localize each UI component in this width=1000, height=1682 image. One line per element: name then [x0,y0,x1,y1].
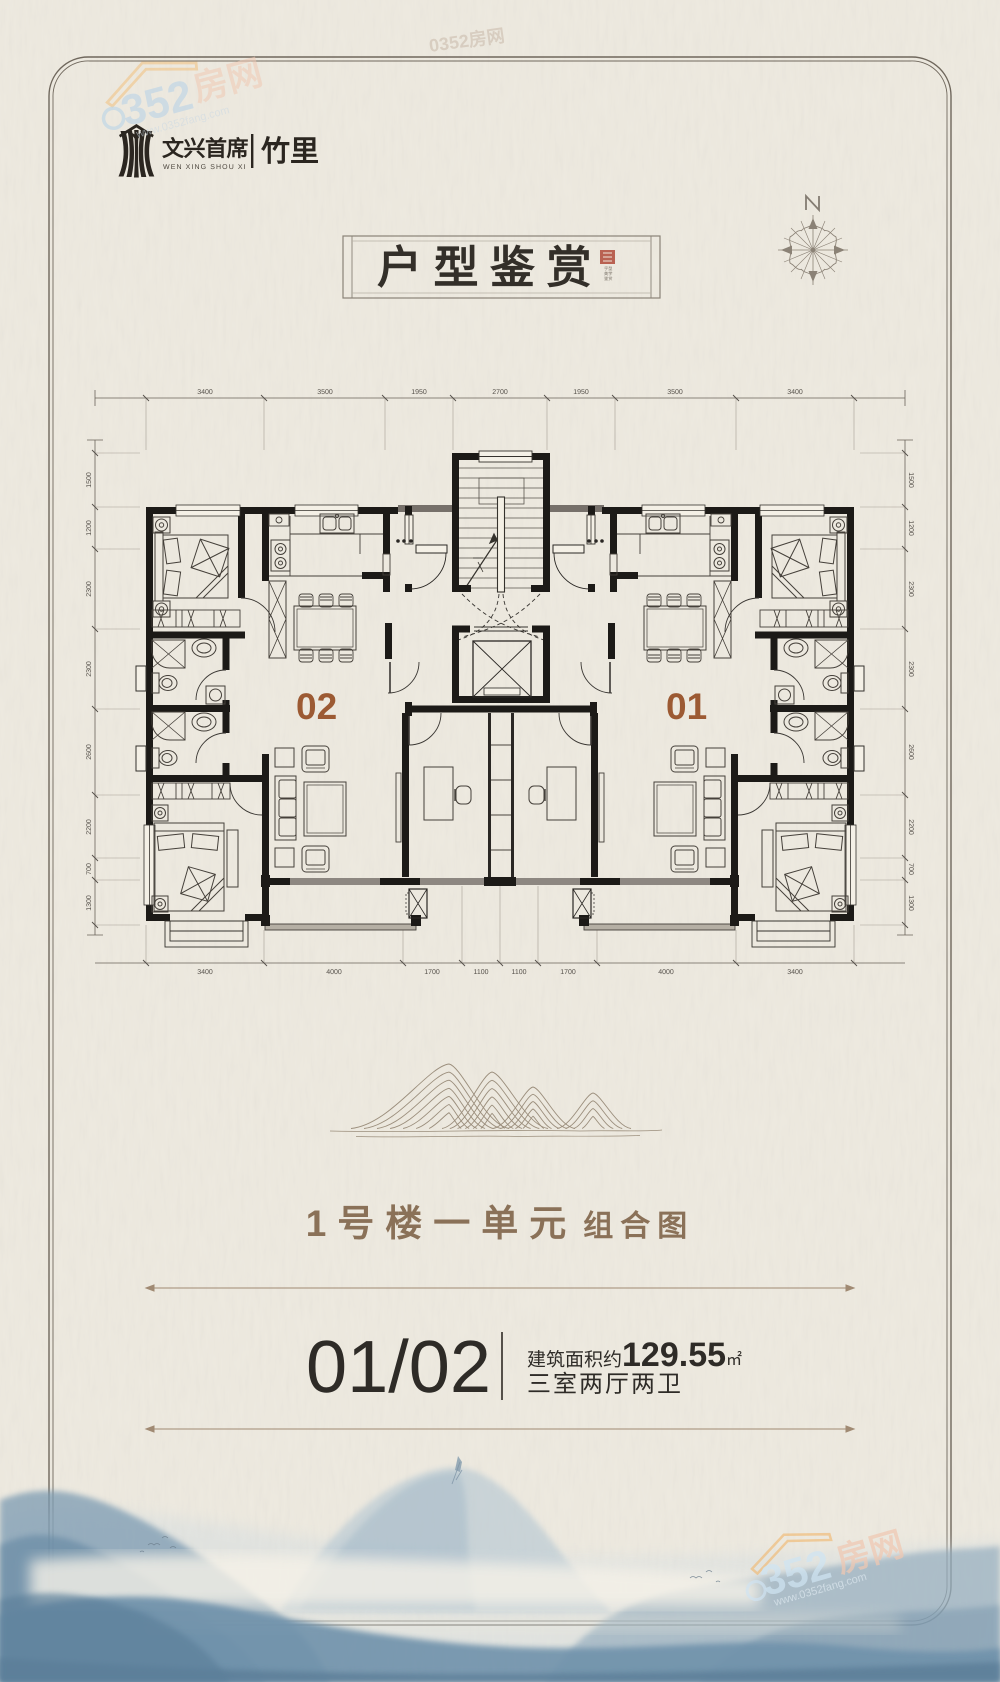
svg-text:1300: 1300 [907,895,914,911]
svg-text:三室两厅两卫: 三室两厅两卫 [527,1371,683,1398]
svg-text:02: 02 [296,686,337,727]
svg-text:3400: 3400 [787,969,803,976]
svg-text:3500: 3500 [317,389,333,396]
svg-text:700: 700 [907,863,914,875]
svg-text:2600: 2600 [907,744,914,760]
svg-text:3400: 3400 [197,969,213,976]
svg-text:竹里: 竹里 [261,136,319,168]
svg-text:1500: 1500 [86,472,93,488]
svg-text:3500: 3500 [667,389,683,396]
svg-text:1200: 1200 [86,520,93,536]
svg-text:户型鉴赏: 户型鉴赏 [377,243,603,293]
svg-text:2300: 2300 [86,581,93,597]
svg-text:1950: 1950 [573,389,589,396]
svg-text:3400: 3400 [197,389,213,396]
svg-text:2300: 2300 [907,661,914,677]
svg-text:WEN XING SHOU XI: WEN XING SHOU XI [163,164,247,171]
svg-text:4000: 4000 [326,969,342,976]
svg-text:3400: 3400 [787,389,803,396]
svg-text:1950: 1950 [411,389,427,396]
svg-text:1200: 1200 [907,520,914,536]
svg-text:1300: 1300 [86,895,93,911]
svg-text:文兴首席: 文兴首席 [162,136,249,161]
svg-text:2700: 2700 [492,389,508,396]
svg-text:1100: 1100 [473,969,488,976]
svg-text:2200: 2200 [907,819,914,835]
svg-text:1700: 1700 [424,969,440,976]
svg-text:2300: 2300 [86,661,93,677]
svg-text:1号楼一单元组合图: 1号楼一单元组合图 [306,1203,695,1244]
svg-text:700: 700 [86,863,93,875]
svg-text:鉴赏: 鉴赏 [604,276,612,281]
svg-text:1100: 1100 [511,969,526,976]
svg-text:2200: 2200 [86,819,93,835]
svg-text:1500: 1500 [907,472,914,488]
svg-text:01: 01 [666,686,707,727]
svg-text:1700: 1700 [560,969,576,976]
svg-text:4000: 4000 [658,969,674,976]
svg-text:01/02: 01/02 [306,1325,491,1408]
svg-text:2300: 2300 [907,581,914,597]
svg-text:2600: 2600 [86,744,93,760]
